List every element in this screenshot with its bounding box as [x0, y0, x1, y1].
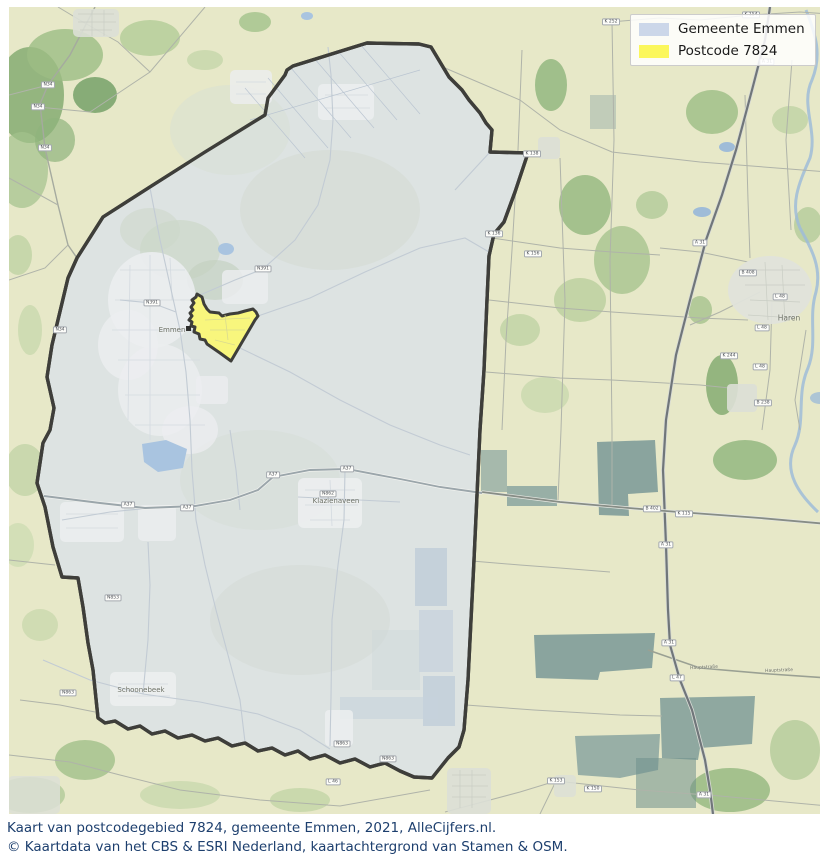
legend: Gemeente Emmen Postcode 7824 [630, 14, 816, 66]
map-figure: N34N34N34N34A37A37A37A37N862N391N391N853… [0, 0, 828, 861]
legend-row-postcode: Postcode 7824 [639, 42, 805, 60]
legend-label-postcode: Postcode 7824 [678, 43, 777, 59]
caption-line-1: Kaart van postcodegebied 7824, gemeente … [7, 819, 568, 838]
legend-swatch-postcode [639, 45, 669, 58]
map-canvas [0, 0, 828, 861]
legend-swatch-municipality [639, 23, 669, 36]
emmen-town-marker [186, 326, 191, 331]
legend-label-municipality: Gemeente Emmen [678, 21, 805, 37]
caption: Kaart van postcodegebied 7824, gemeente … [7, 819, 568, 857]
caption-line-2: © Kaartdata van het CBS & ESRI Nederland… [7, 838, 568, 857]
legend-row-municipality: Gemeente Emmen [639, 20, 805, 38]
